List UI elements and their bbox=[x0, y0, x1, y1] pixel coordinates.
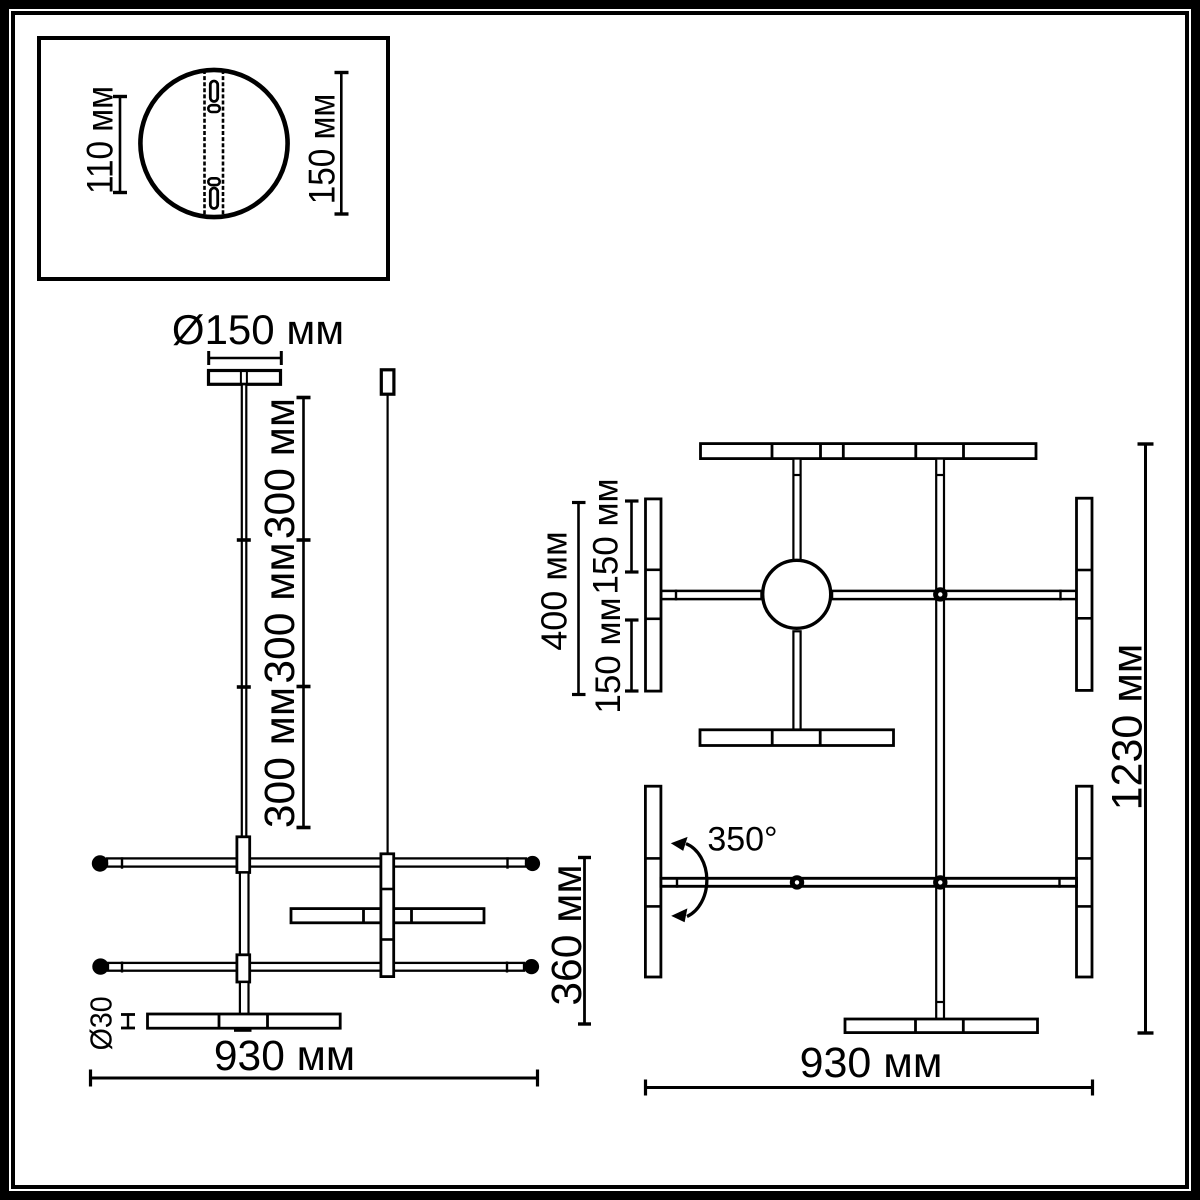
svg-text:350°: 350° bbox=[707, 821, 777, 859]
svg-text:Ø30: Ø30 bbox=[84, 996, 118, 1050]
svg-text:300 мм: 300 мм bbox=[257, 687, 304, 828]
svg-text:110 мм: 110 мм bbox=[80, 86, 121, 194]
svg-text:300 мм: 300 мм bbox=[257, 398, 304, 539]
svg-text:300 мм: 300 мм bbox=[257, 542, 304, 683]
svg-text:930 мм: 930 мм bbox=[800, 1039, 943, 1087]
svg-text:360 мм: 360 мм bbox=[544, 864, 591, 1005]
svg-text:1230 мм: 1230 мм bbox=[1104, 644, 1152, 811]
svg-text:150 мм: 150 мм bbox=[589, 597, 628, 713]
svg-text:Ø150 мм: Ø150 мм bbox=[172, 306, 344, 353]
svg-text:150 мм: 150 мм bbox=[302, 94, 343, 205]
svg-text:930 мм: 930 мм bbox=[214, 1033, 355, 1080]
svg-text:400 мм: 400 мм bbox=[534, 531, 575, 651]
svg-text:150 мм: 150 мм bbox=[587, 478, 626, 594]
